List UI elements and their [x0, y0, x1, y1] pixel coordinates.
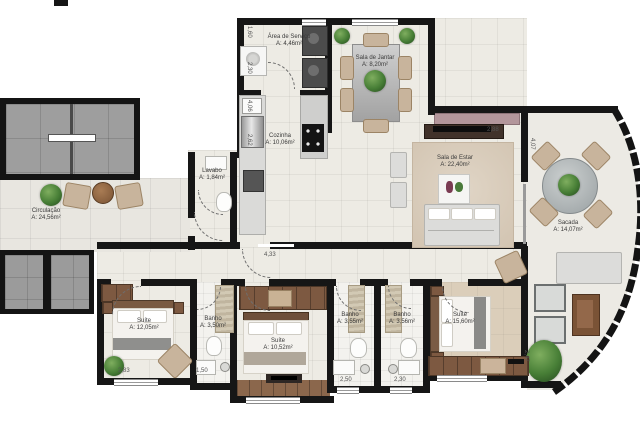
room-area: A: 10,52m² [250, 345, 306, 352]
hall-table [92, 182, 114, 204]
dining-centerpiece [364, 70, 386, 92]
balcony-sofa [556, 252, 622, 284]
sofa-backline [428, 230, 494, 231]
dishwasher [243, 170, 264, 192]
room-area: A: 4,46m² [252, 41, 326, 48]
room-area: A: 15,60m² [432, 319, 488, 326]
room-label-sala-jantar: Sala de Jantar A: 8,20m² [340, 55, 410, 69]
room-area: A: 3,50m² [192, 323, 234, 330]
floor-plan: Área de Serviço A: 4,46m² Sala de Jantar… [0, 0, 640, 424]
room-name: Sala de Estar [420, 155, 490, 162]
room-name: Banho [380, 312, 424, 319]
banho3-sink [398, 360, 420, 375]
stair-block-2 [46, 250, 94, 314]
room-area: A: 22,40m² [420, 162, 490, 169]
room-name: Suíte [432, 312, 488, 319]
room-label-sala-estar: Sala de Estar A: 22,40m² [420, 155, 490, 169]
window [352, 19, 398, 26]
dimension-label: 1,50 [196, 368, 208, 374]
room-label-banho-2: Banho A: 3,55m² [328, 312, 372, 326]
dimension-label: 2,50 [340, 377, 352, 383]
stair-block-1 [0, 250, 48, 314]
window [246, 397, 300, 404]
dimension-line [258, 244, 294, 247]
room-name: Banho [192, 316, 234, 323]
plant [334, 28, 350, 44]
dimension-label: 2,83 [118, 368, 130, 374]
dimension-label: 4,33 [264, 252, 276, 258]
balcony-centerpiece [558, 174, 580, 196]
master-tv [508, 359, 524, 364]
room-name: Suíte [116, 318, 172, 325]
dining-chair [363, 119, 389, 133]
room-name: Suíte [250, 338, 306, 345]
armchair [390, 152, 407, 178]
hall-plant [40, 184, 62, 206]
banho1-drain [220, 362, 230, 372]
wall [237, 18, 435, 25]
banho2-toilet [350, 338, 367, 358]
room-name: Circulação [10, 208, 82, 215]
balcony-armchair [534, 284, 566, 312]
room-name: Banho [328, 312, 372, 319]
room-area: A: 1,84m² [192, 175, 232, 182]
sofa-cushion [428, 208, 450, 220]
wall [521, 106, 528, 182]
dimension-label: 2,88 [487, 127, 499, 133]
room-label-suite-1: Suíte A: 12,05m² [116, 318, 172, 332]
room-label-suite-master: Suíte A: 15,60m² [432, 312, 488, 326]
wall [269, 279, 336, 286]
room-name: Cozinha [248, 133, 312, 140]
window [337, 387, 359, 394]
hall-chair [114, 182, 144, 210]
room-label-suite-2: Suíte A: 10,52m² [250, 338, 306, 352]
sofa-cushion [451, 208, 473, 220]
dimension-label: 1,60 [246, 26, 252, 38]
suite2-bed-throw [244, 352, 306, 365]
banho2-drain [360, 364, 370, 374]
banho3-toilet [400, 338, 417, 358]
banho3-drain [388, 364, 398, 374]
room-area: A: 3,56m² [380, 319, 424, 326]
room-label-cozinha: Cozinha A: 10,06m² [248, 133, 312, 147]
tv [433, 126, 491, 132]
room-name: Sala de Jantar [340, 55, 410, 62]
wall [521, 381, 561, 388]
room-area: A: 12,05m² [116, 325, 172, 332]
room-name: Área de Serviço [252, 34, 326, 41]
window [437, 375, 487, 382]
window [114, 379, 158, 386]
coffee-table [438, 174, 470, 204]
room-label-lavabo: Lavabo A: 1,84m² [192, 168, 232, 182]
wall [141, 279, 197, 286]
wall [97, 242, 240, 249]
dimension-label: 2,30 [394, 377, 406, 383]
balcony-slider-door [523, 184, 526, 244]
window [302, 19, 326, 26]
room-area: A: 24,56m² [10, 215, 82, 222]
balcony-plant [526, 340, 562, 382]
dimension-label: 2,30 [246, 62, 252, 74]
room-label-circulacao: Circulação A: 24,56m² [10, 208, 82, 222]
room-label-banho-1: Banho A: 3,50m² [192, 316, 234, 330]
dimension-label: 4,06 [246, 100, 252, 112]
suite2-pillow [248, 322, 274, 335]
banho2-sink [333, 360, 355, 375]
dining-chair [398, 88, 412, 112]
floor-corridor [97, 247, 527, 283]
room-area: A: 10,06m² [248, 140, 312, 147]
window [390, 387, 412, 394]
sofa-cushion [474, 208, 496, 220]
master-dresser [480, 358, 506, 374]
elevator-doors [48, 134, 96, 142]
wall [188, 152, 195, 218]
suite1-bed-throw [113, 338, 171, 350]
wall [428, 18, 435, 115]
room-label-sacada: Sacada A: 14,07m² [540, 220, 596, 234]
room-name: Sacada [540, 220, 596, 227]
wall [468, 279, 527, 286]
wall [54, 0, 68, 6]
plant [399, 28, 415, 44]
coffee-table-decor [446, 181, 453, 193]
room-label-banho-3: Banho A: 3,56m² [380, 312, 424, 326]
room-area: A: 3,55m² [328, 319, 372, 326]
suite2-tv [271, 376, 297, 380]
room-area: A: 14,07m² [540, 227, 596, 234]
wall [374, 279, 381, 386]
dimension-label: 2,47 [523, 350, 529, 362]
dining-chair [340, 88, 354, 112]
banho1-toilet [206, 336, 222, 356]
room-label-area-servico: Área de Serviço A: 4,46m² [252, 34, 326, 48]
armchair [390, 182, 407, 208]
hall-chair [62, 182, 92, 210]
kitchen-sink [242, 98, 262, 114]
dimension-label: 2,62 [246, 134, 252, 146]
coffee-table-decor [455, 182, 463, 192]
suite2-pillow [276, 322, 302, 335]
tank-basin [308, 65, 319, 76]
balcony-coffee-table-top [577, 300, 593, 328]
suite1-nightstand [173, 302, 184, 314]
dining-chair [363, 33, 389, 47]
master-pillow [441, 323, 453, 347]
room-area: A: 8,20m² [340, 62, 410, 69]
room-name: Lavabo [192, 168, 232, 175]
wall [327, 279, 334, 393]
suite2-dresser [268, 290, 292, 307]
dimension-label: 4,07 [529, 138, 535, 150]
